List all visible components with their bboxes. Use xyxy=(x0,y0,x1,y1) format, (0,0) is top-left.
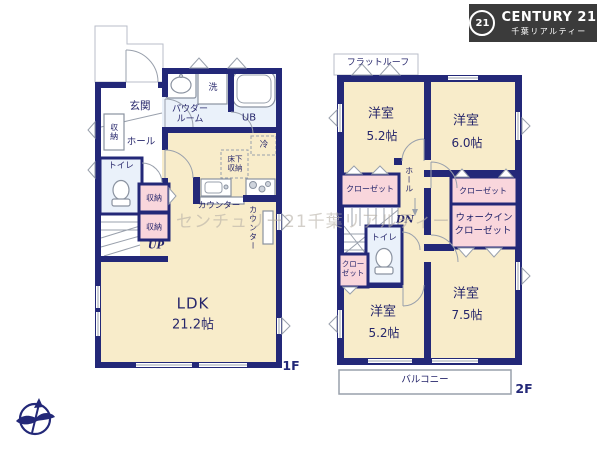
room-label-storage-b: 収納 xyxy=(146,222,162,231)
stairs-dn-label: DN xyxy=(396,214,414,226)
room-size-ldk: 21.2帖 xyxy=(172,319,214,334)
room-label-ldk: LDK xyxy=(177,295,210,312)
label-flat-roof: フラットルーフ xyxy=(347,58,409,68)
logo-brand: CENTURY 21 xyxy=(501,10,596,25)
room-label-powder-room: パウダールーム xyxy=(169,105,211,126)
room-label-bedroom-se: 洋室 xyxy=(453,288,479,303)
room-label-toilet-2f: トイレ xyxy=(371,234,397,244)
room-label-bedroom-nw: 洋室 xyxy=(368,108,394,123)
room-label-laundry: 洗 xyxy=(208,83,217,93)
room-label-closet-sw: クローゼット xyxy=(341,260,366,277)
label-balcony: バルコニー xyxy=(401,376,448,387)
floor-label-2f: 2F xyxy=(515,382,532,396)
label-underfloor-storage: 床下収納 xyxy=(227,155,244,172)
century21-badge-icon: 21 xyxy=(469,10,495,36)
floor-label-1f: 1F xyxy=(282,359,299,373)
room-label-unit-bath: UB xyxy=(242,112,256,124)
room-size-bedroom-ne: 6.0帖 xyxy=(451,137,482,151)
stairs-up-label: UP xyxy=(148,240,164,252)
room-label-hall-2f: ホール xyxy=(404,167,413,194)
room-label-closet-right: クローゼット xyxy=(459,186,507,195)
room-size-bedroom-nw: 5.2帖 xyxy=(366,130,397,144)
room-label-bedroom-sw: 洋室 xyxy=(370,306,396,321)
label-counter: カウンター xyxy=(198,202,241,212)
label-fridge: 冷 xyxy=(260,141,269,151)
room-label-storage-left: 収納 xyxy=(109,123,118,141)
room-label-storage-a: 収納 xyxy=(146,193,162,202)
logo-subtitle: 千葉リアルティー xyxy=(511,26,586,37)
label-counter-side: カウンター xyxy=(248,206,257,251)
room-label-bedroom-ne: 洋室 xyxy=(453,115,479,130)
room-label-walkin-line1: ウォークイン xyxy=(455,214,512,225)
room-size-bedroom-se: 7.5帖 xyxy=(451,309,482,323)
logo-badge: 21 xyxy=(476,18,490,29)
room-label-hall-1f: ホール xyxy=(127,138,156,149)
room-size-bedroom-sw: 5.2帖 xyxy=(368,327,399,341)
room-label-closet-left: クローゼット xyxy=(346,184,394,193)
floorplan-page: センチュリー21千葉リアルティー 21 CENTURY 21 千葉リアルティー … xyxy=(0,0,600,450)
room-label-genkan: 玄関 xyxy=(130,100,151,112)
north-arrow-icon xyxy=(12,392,58,442)
room-label-walkin-line2: クローゼット xyxy=(454,227,511,238)
room-label-toilet-1f: トイレ xyxy=(108,162,134,172)
century21-logo: 21 CENTURY 21 千葉リアルティー xyxy=(469,4,597,42)
